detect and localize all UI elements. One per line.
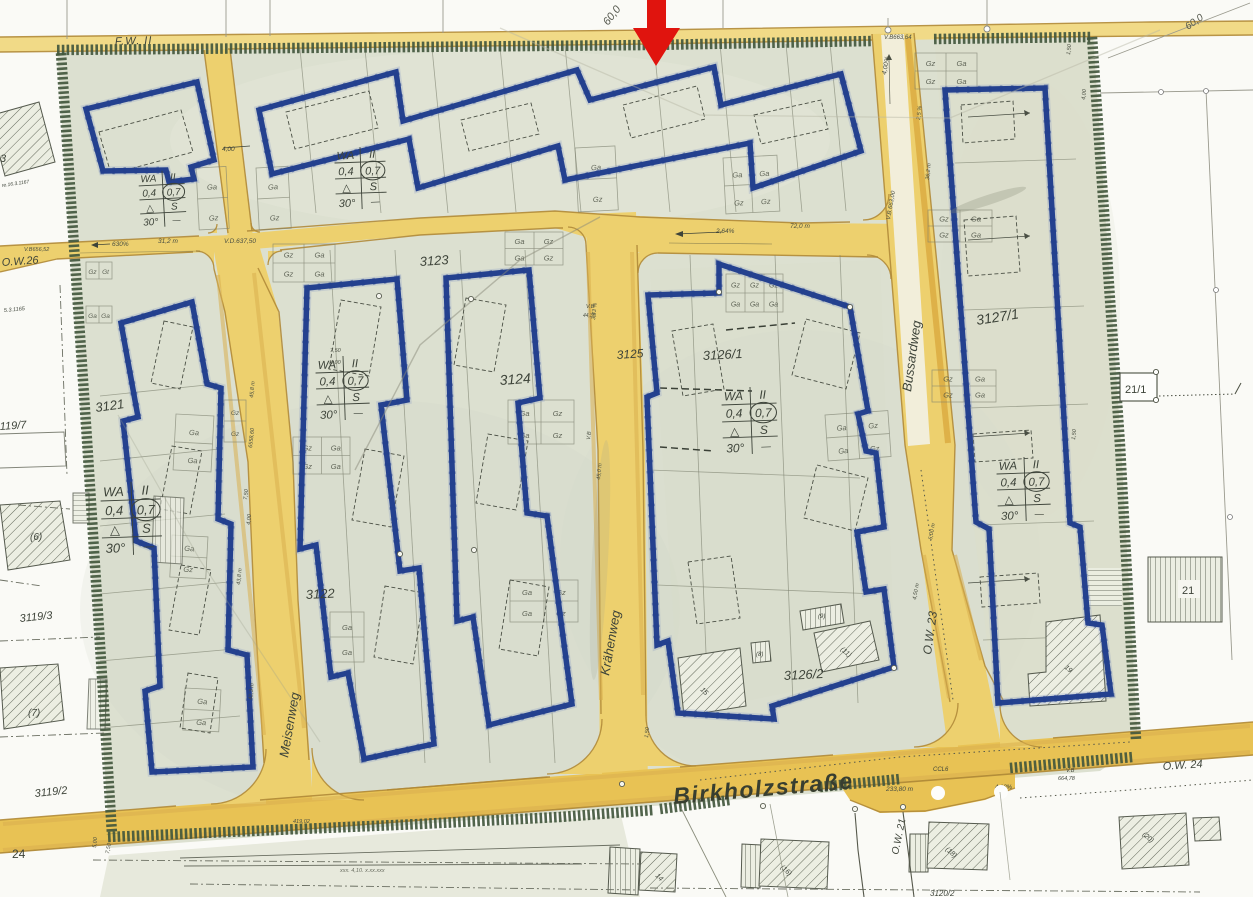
svg-text:Ga: Ga: [732, 170, 742, 180]
svg-text:Ga: Ga: [187, 456, 197, 466]
svg-text:30°: 30°: [143, 217, 159, 229]
svg-text:Ga: Ga: [514, 237, 524, 246]
svg-text:Gz: Gz: [734, 198, 744, 208]
svg-text:II: II: [141, 482, 149, 497]
svg-text:S: S: [352, 392, 360, 404]
svg-text:3125: 3125: [616, 346, 644, 362]
svg-text:(6): (6): [30, 532, 42, 543]
svg-text:xxx. 4,10. x.xx.xxx: xxx. 4,10. x.xx.xxx: [339, 868, 385, 874]
svg-text:V.B: V.B: [586, 304, 595, 310]
svg-text:V.B663,64: V.B663,64: [884, 35, 912, 41]
svg-text:664,78: 664,78: [1058, 776, 1076, 782]
svg-text:Gz: Gz: [231, 431, 240, 438]
svg-text:Gz: Gz: [943, 375, 953, 384]
svg-text:II: II: [369, 149, 376, 161]
svg-text:Gz: Gz: [939, 231, 949, 240]
svg-text:Ga: Ga: [731, 302, 740, 309]
svg-text:0,7: 0,7: [365, 165, 382, 178]
svg-text:Gz: Gz: [231, 410, 240, 417]
svg-text:△: △: [110, 522, 121, 537]
svg-text:Ga: Ga: [101, 313, 110, 320]
svg-text:Ga: Ga: [836, 423, 847, 433]
svg-text:Gz: Gz: [593, 195, 603, 205]
svg-text:S: S: [1033, 493, 1041, 505]
svg-text:—: —: [1034, 509, 1044, 519]
svg-text:30°: 30°: [105, 540, 125, 556]
svg-text:△: △: [146, 203, 155, 214]
svg-text:30°: 30°: [339, 198, 357, 211]
svg-text:4,00: 4,00: [330, 360, 342, 366]
svg-text:Ga: Ga: [522, 588, 532, 597]
svg-text:Ga: Ga: [971, 231, 981, 240]
svg-text:Ga: Ga: [759, 169, 769, 179]
svg-text:233,80 m: 233,80 m: [885, 786, 914, 793]
svg-text:7,50: 7,50: [330, 348, 342, 354]
svg-text:V.D.637,50: V.D.637,50: [224, 238, 256, 245]
svg-text:Ga: Ga: [522, 609, 532, 618]
svg-text:(9): (9): [818, 614, 825, 620]
svg-text:0,4: 0,4: [1000, 477, 1016, 490]
svg-text:419,02: 419,02: [293, 819, 310, 825]
svg-text:Ga: Ga: [750, 302, 759, 309]
svg-text:Gz: Gz: [926, 59, 936, 68]
svg-text:WA: WA: [140, 174, 157, 186]
svg-text:1,50: 1,50: [1071, 428, 1078, 440]
svg-text:(8): (8): [756, 652, 763, 658]
svg-text:—: —: [371, 196, 380, 206]
svg-text:21/1: 21/1: [1125, 384, 1146, 396]
svg-text:3126/2: 3126/2: [783, 666, 824, 683]
svg-text:Ga: Ga: [838, 446, 849, 456]
svg-text:0,4: 0,4: [105, 503, 124, 519]
svg-text:0,4: 0,4: [142, 188, 157, 200]
svg-text:4,00: 4,00: [1081, 88, 1088, 100]
svg-text:—: —: [761, 441, 771, 452]
svg-text:2,64%: 2,64%: [715, 228, 735, 235]
svg-text:Gz: Gz: [868, 421, 878, 431]
svg-text:Gz: Gz: [731, 283, 740, 290]
svg-text:Gz: Gz: [88, 269, 97, 276]
svg-text:Ga: Ga: [975, 391, 985, 400]
svg-text:Gz: Gz: [943, 391, 953, 400]
svg-text:Ga: Ga: [342, 623, 352, 632]
svg-text:7,50: 7,50: [243, 488, 250, 500]
svg-text:Ga: Ga: [769, 302, 778, 309]
svg-text:—: —: [144, 541, 155, 552]
svg-text:0,4: 0,4: [338, 166, 354, 179]
svg-text:21: 21: [1182, 585, 1194, 597]
svg-text:630%: 630%: [112, 241, 129, 248]
svg-text:V.B656,52: V.B656,52: [24, 247, 49, 253]
svg-text:S: S: [171, 201, 179, 212]
svg-text:S: S: [369, 181, 377, 193]
svg-text:—: —: [353, 408, 363, 418]
svg-text:Ga: Ga: [314, 251, 324, 260]
svg-text:72,0 m: 72,0 m: [790, 223, 810, 230]
svg-text:Gz: Gz: [750, 283, 759, 290]
svg-text:Gz: Gz: [553, 431, 563, 440]
svg-text:30°: 30°: [320, 409, 338, 422]
svg-text:—: —: [172, 215, 180, 224]
svg-text:5,00: 5,00: [92, 836, 99, 848]
svg-text:Ga: Ga: [314, 270, 324, 279]
svg-text:3122: 3122: [305, 585, 335, 602]
svg-text:Ga: Ga: [956, 59, 966, 68]
svg-text:CCL6: CCL6: [933, 767, 949, 773]
svg-text:WA: WA: [103, 484, 124, 500]
svg-text:Ga: Ga: [196, 718, 206, 728]
svg-text:Gz: Gz: [926, 77, 936, 86]
svg-text:Gz: Gz: [284, 251, 294, 260]
svg-text:4,00: 4,00: [246, 513, 253, 525]
svg-text:Ga: Ga: [268, 182, 278, 192]
svg-text:0,4: 0,4: [725, 406, 742, 421]
svg-text:30°: 30°: [1001, 510, 1019, 523]
svg-text:1,50: 1,50: [1066, 43, 1073, 55]
svg-text:Ga: Ga: [342, 648, 352, 657]
svg-text:S: S: [760, 423, 768, 437]
svg-text:0,7: 0,7: [347, 375, 364, 388]
svg-text:30°: 30°: [726, 441, 745, 456]
svg-text:0,7: 0,7: [166, 187, 181, 199]
svg-text:119/7: 119/7: [0, 419, 28, 433]
svg-text:3126/1: 3126/1: [702, 346, 742, 363]
svg-text:Gz: Gz: [270, 213, 280, 223]
svg-text:△: △: [323, 393, 333, 405]
svg-text:△: △: [730, 424, 740, 438]
svg-text:Gz: Gz: [284, 270, 294, 279]
svg-text:Ga: Ga: [189, 428, 199, 438]
svg-text:44,30: 44,30: [583, 313, 596, 319]
svg-text:0,7: 0,7: [755, 405, 773, 420]
svg-text:Gz: Gz: [209, 213, 219, 223]
svg-text:S: S: [142, 521, 152, 536]
svg-text:Ga: Ga: [331, 443, 341, 452]
svg-text:Gz: Gz: [553, 409, 563, 418]
svg-text:0,7: 0,7: [1028, 476, 1045, 489]
svg-text:Gz: Gz: [761, 197, 771, 207]
svg-text:F.W. II: F.W. II: [115, 35, 153, 48]
svg-text:Ga: Ga: [331, 462, 341, 471]
svg-text:3: 3: [0, 153, 7, 165]
svg-text:II: II: [170, 172, 176, 183]
svg-text:Ga: Ga: [207, 182, 217, 192]
svg-text:WA: WA: [336, 150, 354, 163]
svg-text:3124: 3124: [499, 370, 531, 388]
svg-text:II: II: [759, 388, 767, 402]
svg-text:0,4: 0,4: [319, 376, 335, 389]
svg-text:Ga: Ga: [956, 77, 966, 86]
svg-text:3123: 3123: [419, 252, 450, 269]
svg-text:Ga: Ga: [88, 313, 97, 320]
svg-text:Ga: Ga: [975, 375, 985, 384]
svg-text:0,7: 0,7: [137, 502, 156, 518]
svg-text:WA: WA: [724, 389, 744, 404]
svg-text:Ga: Ga: [197, 697, 207, 707]
svg-text:V.B: V.B: [586, 431, 593, 440]
svg-text:1,50: 1,50: [644, 726, 651, 738]
svg-text:(7): (7): [28, 708, 40, 719]
svg-text:24: 24: [12, 847, 26, 861]
svg-text:△: △: [1004, 494, 1014, 506]
svg-text:Gt: Gt: [102, 269, 110, 276]
svg-text:WA: WA: [999, 460, 1018, 473]
svg-text:△: △: [342, 182, 351, 194]
svg-text:31,2 m: 31,2 m: [158, 238, 178, 245]
svg-text:V.B: V.B: [1066, 768, 1075, 774]
svg-text:Gz: Gz: [544, 253, 554, 262]
svg-text:Gz: Gz: [939, 215, 949, 224]
